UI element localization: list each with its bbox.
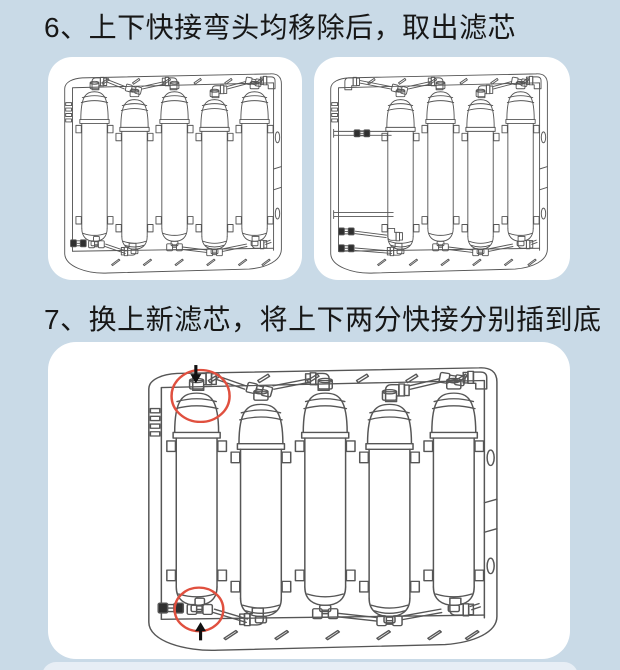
lower-mounting-rail [334,211,394,219]
step-7-heading: 7、换上新滤芯，将上下两分快接分别插到底 [44,298,602,338]
diagram-filter-unit-annotated [130,351,522,653]
step-6-heading: 6、上下快接弯头均移除后，取出滤芯 [44,6,516,46]
quick-connect-fitting [377,616,402,626]
figure-card-before-removal [48,57,302,280]
quick-connect-fitting [125,84,142,95]
figure-card-insert-quick-connects [48,342,570,659]
dark-quick-connect-fitting [354,130,370,137]
quick-connect-fitting [391,84,408,95]
filter-cartridge [196,89,233,253]
filter-cartridge [424,378,484,611]
elbow-fitting [386,384,410,402]
filter-cartridge [295,378,355,611]
quick-connect-fitting [473,249,489,256]
diagram-filter-unit-cartridge-removed [319,62,563,275]
filter-cartridge [156,81,193,245]
filter-cartridge [116,89,153,253]
filter-cartridge [462,89,499,253]
elbow-fitting [450,598,474,616]
filter-cartridge [360,390,420,623]
housing-outline [331,74,548,273]
filter-cartridge [502,81,539,245]
dark-quick-connect-fitting [339,228,355,235]
next-section-card-peek [42,662,578,670]
dark-quick-connect-fitting [339,245,355,252]
figure-card-after-removal [314,57,570,280]
filter-cartridge [231,390,291,623]
housing-outline [65,74,282,273]
dark-quick-connect-fitting [158,603,183,613]
quick-connect-fitting [207,249,223,256]
quick-connect-fitting [246,382,273,397]
filter-cartridge [167,378,227,611]
elbow-fitting [478,85,493,97]
diagram-filter-unit-all-installed [53,62,297,275]
elbow-fitting [388,228,403,240]
filter-cartridge [76,81,113,245]
filter-unit-drawing [331,74,548,273]
elbow-fitting [212,85,227,97]
filter-cartridge [422,81,459,245]
filter-cartridge [236,81,273,245]
instruction-page: 6、上下快接弯头均移除后，取出滤芯 7、换上新滤芯，将上下两分快接分别插到底 [0,0,620,670]
dark-quick-connect-fitting [71,240,87,247]
filter-unit-drawing [149,368,497,651]
housing-outline [149,368,497,651]
filter-unit-drawing [65,74,282,273]
